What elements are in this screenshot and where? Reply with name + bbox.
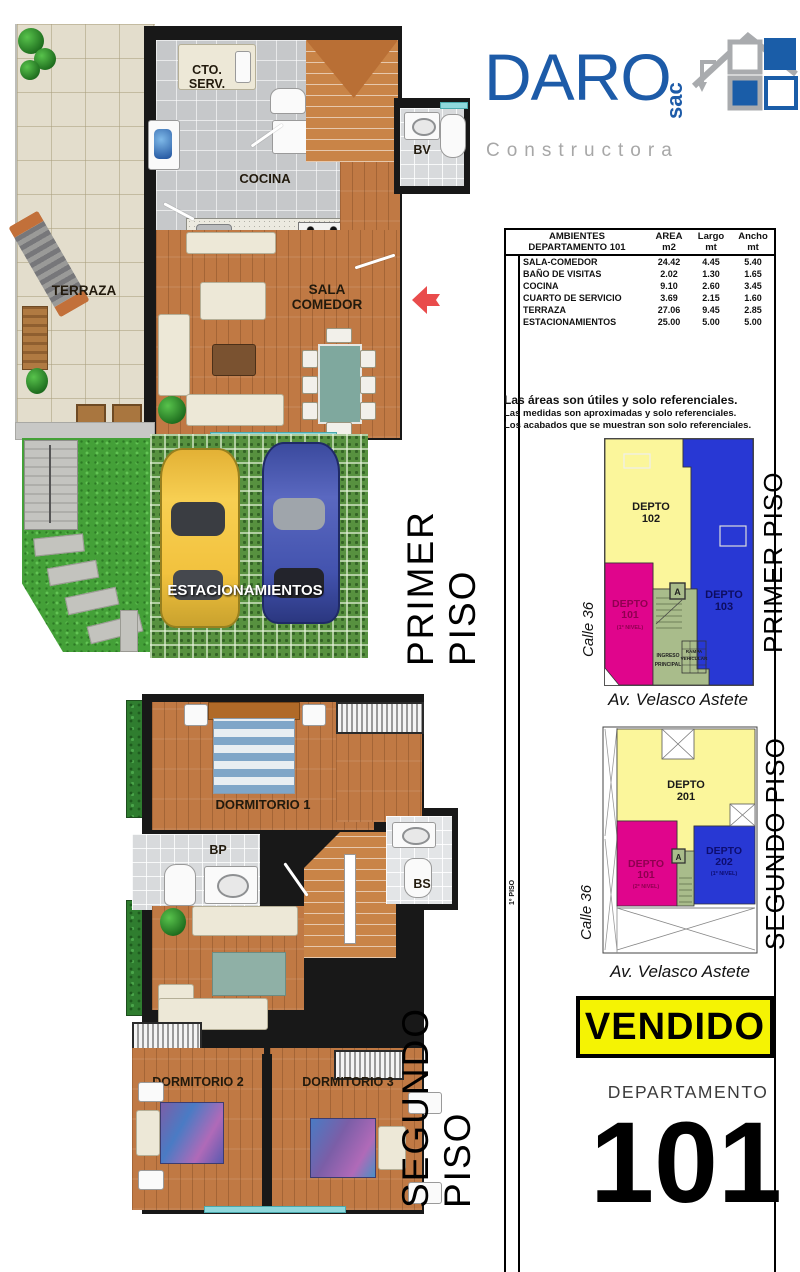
ingreso-line1: INGRESO: [656, 653, 679, 659]
header-largo-line2: mt: [690, 242, 732, 253]
sala-line2: COMEDOR: [272, 298, 382, 313]
row-area: 9.10: [648, 281, 690, 291]
site-plot-2: A DEPTO 201 DEPTO 101 (2º NIVEL) DEPTO 2…: [602, 726, 758, 958]
row-name: BAÑO DE VISITAS: [520, 269, 648, 279]
nightstand-icon: [302, 704, 326, 726]
sink-oval: [217, 874, 249, 898]
chair-icon: [302, 350, 318, 368]
depto102-line2: 102: [642, 513, 660, 525]
chair-icon: [360, 350, 376, 368]
bed-duvet: [213, 718, 295, 794]
row-name: COCINA: [520, 281, 648, 291]
chair-icon: [302, 376, 318, 394]
car-yellow-icon: [160, 448, 240, 628]
brochure-page: TERRAZA CTO. SERV. COCINA: [0, 0, 800, 1272]
bv-room: BV: [394, 98, 470, 194]
stairs-icon: [306, 40, 398, 162]
bed-icon: [132, 1100, 224, 1164]
primer-piso-plan-title: PRIMER PISO: [414, 424, 470, 666]
row-largo: 2.15: [690, 293, 732, 303]
logo-suffix-text: sac: [662, 68, 688, 134]
toilet-icon: [164, 864, 196, 906]
row-area: 3.69: [648, 293, 690, 303]
depto102-line1: DEPTO: [632, 501, 670, 513]
laundry-sink-icon: [148, 120, 180, 170]
window: [440, 102, 468, 109]
dining-table-icon: [318, 344, 362, 424]
depto101-line3: (1º NIVEL): [617, 625, 644, 631]
header-title: AMBIENTES DEPARTAMENTO 101: [506, 230, 648, 254]
header-largo-line1: Largo: [690, 231, 732, 242]
garden-lawn: [22, 438, 150, 652]
note-line2: Las medidas son aproximadas y solo refer…: [504, 408, 796, 420]
header-ancho-line1: Ancho: [732, 231, 774, 242]
cocina-label: COCINA: [220, 172, 310, 186]
sofa-icon: [200, 282, 266, 320]
nightstand-icon: [138, 1170, 164, 1190]
bs-label: BS: [402, 878, 442, 892]
header-area-line1: AREA: [648, 231, 690, 242]
note-line1: Las áreas son útiles y solo referenciale…: [504, 394, 796, 408]
depto101-line2: 101: [621, 609, 639, 621]
sideboard-icon: [186, 232, 276, 254]
depto101-line3: (2º NIVEL): [633, 884, 660, 890]
depto202-line2: 202: [715, 856, 733, 868]
stair-landing: [306, 40, 398, 98]
bed-icon: [308, 1116, 408, 1178]
ingreso-line2: PRINCIPAL: [655, 662, 682, 668]
stairs-icon: [304, 832, 396, 958]
row-name: TERRAZA: [520, 305, 648, 315]
areas-table-header: AMBIENTES DEPARTAMENTO 101 AREA m2 Largo…: [506, 230, 774, 256]
sala-comedor-label: SALA COMEDOR: [272, 283, 382, 313]
sofa-icon: [186, 394, 284, 426]
header-ancho-line2: mt: [732, 242, 774, 253]
site-diagram-primer-piso: Calle 36 A DEPTO 102 DEPTO 103 DEPTO 101…: [578, 432, 794, 718]
cto-line2: SERV.: [172, 78, 242, 92]
plant-icon: [160, 908, 186, 936]
header-largo: Largo mt: [690, 230, 732, 254]
diagram1-side-title: PRIMER PISO: [758, 436, 789, 688]
note-line3: Los acabados que se muestran son solo re…: [504, 420, 796, 432]
disclaimer-notes: Las áreas son útiles y solo referenciale…: [504, 394, 796, 432]
row-largo: 2.60: [690, 281, 732, 291]
vendido-banner: VENDIDO: [576, 996, 774, 1058]
row-largo: 1.30: [690, 269, 732, 279]
car-windshield: [273, 498, 325, 530]
sink-oval: [402, 827, 430, 845]
entrance-arrow-icon: [412, 282, 440, 318]
segundo-piso-plan-title: SEGUNDO PISO: [408, 944, 466, 1208]
sidewalk: [15, 422, 155, 440]
desk-icon: [192, 906, 298, 936]
stair-railing: [344, 854, 356, 944]
bathroom-sink-icon: [404, 112, 440, 140]
toilet-icon: [270, 88, 306, 114]
row-area: 2.02: [648, 269, 690, 279]
car-windshield: [171, 502, 225, 536]
site-diagram-segundo-piso: Calle 36 A DEPTO 201 DEPTO 101 (2º NIVEL…: [578, 724, 794, 988]
header-area: AREA m2: [648, 230, 690, 254]
chair-icon: [302, 402, 318, 420]
stepping-stone: [65, 587, 120, 615]
plant-icon: [158, 396, 186, 424]
stair-a-label: A: [674, 587, 681, 597]
header-title-line2: DEPARTAMENTO 101: [506, 242, 648, 253]
row-largo: 4.45: [690, 257, 732, 267]
calle-36-label: Calle 36: [580, 582, 597, 677]
sink-basin: [154, 129, 172, 159]
plant-icon: [26, 368, 48, 394]
armchair-icon: [158, 314, 190, 396]
stepping-stone: [33, 533, 85, 556]
row-largo: 5.00: [690, 317, 732, 327]
site-plot-1: A DEPTO 102 DEPTO 103 DEPTO 101 (1º NIVE…: [604, 438, 754, 686]
walkway-ramp: [24, 440, 78, 530]
departamento-number: 101: [578, 1106, 794, 1221]
depto202-line3: (1º NIVEL): [711, 871, 738, 877]
stair-corner-wall: [304, 832, 340, 868]
nightstand-icon: [184, 704, 208, 726]
row-name: ESTACIONAMIENTOS: [520, 317, 648, 327]
row-area: 25.00: [648, 317, 690, 327]
cto-line1: CTO.: [172, 64, 242, 78]
table-row: COCINA9.102.603.45: [520, 280, 774, 292]
chair-icon: [326, 328, 352, 343]
table-row: ESTACIONAMIENTOS25.005.005.00: [520, 316, 774, 328]
bathroom-sink-icon: [392, 822, 436, 848]
calle-36-label: Calle 36: [578, 872, 595, 952]
bv-label: BV: [402, 144, 442, 158]
sala-line1: SALA: [272, 283, 382, 298]
bathroom-sink-icon: [204, 866, 258, 904]
row-ancho: 3.45: [732, 281, 774, 291]
bed-duvet: [310, 1118, 376, 1178]
row-name: CUARTO DE SERVICIO: [520, 293, 648, 303]
depto201-line2: 201: [677, 791, 695, 803]
rampa-line1: RAMPA: [686, 649, 703, 654]
table-row: CUARTO DE SERVICIO3.692.151.60: [520, 292, 774, 304]
av-velasco-astete-label: Av. Velasco Astete: [578, 690, 778, 710]
row-ancho: 1.60: [732, 293, 774, 303]
chair-icon: [360, 376, 376, 394]
toilet-icon: [440, 114, 466, 158]
header-title-line1: AMBIENTES: [506, 231, 648, 242]
depto103-line1: DEPTO: [705, 589, 743, 601]
diagram2-side-title: SEGUNDO PISO: [760, 724, 791, 964]
bed-pillow: [136, 1110, 160, 1156]
row-area: 24.42: [648, 257, 690, 267]
bed-icon: [208, 702, 298, 800]
bp-label: BP: [200, 844, 236, 858]
header-ancho: Ancho mt: [732, 230, 774, 254]
table-row: BAÑO DE VISITAS2.021.301.65: [520, 268, 774, 280]
rampa-line2: VEHICULAR: [681, 656, 708, 661]
depto201-line1: DEPTO: [667, 779, 705, 791]
logo-tagline: Constructora: [486, 140, 798, 162]
logo-house-icon: [686, 26, 800, 140]
sink-oval: [412, 118, 436, 136]
row-ancho: 5.40: [732, 257, 774, 267]
window: [204, 1206, 346, 1213]
coffee-table-icon: [212, 344, 256, 376]
estacionamientos-label: ESTACIONAMIENTOS: [150, 582, 340, 599]
closet-icon: [336, 702, 424, 734]
row-ancho: 2.85: [732, 305, 774, 315]
row-ancho: 1.65: [732, 269, 774, 279]
logo-brand-text: DARO: [484, 44, 671, 110]
header-area-line2: m2: [648, 242, 690, 253]
depto103-line2: 103: [715, 601, 733, 613]
row-largo: 9.45: [690, 305, 732, 315]
depto101-line2: 101: [637, 869, 655, 881]
row-area: 27.06: [648, 305, 690, 315]
chair-icon: [360, 402, 376, 420]
table-row: TERRAZA27.069.452.85: [520, 304, 774, 316]
av-velasco-astete-label: Av. Velasco Astete: [578, 962, 782, 982]
plant-icon: [20, 60, 40, 80]
bench-icon: [22, 306, 48, 370]
nightstand-icon: [138, 1082, 164, 1102]
cuarto-servicio-label: CTO. SERV.: [172, 64, 242, 92]
walkway-arrow: [49, 445, 51, 523]
table-row: SALA-COMEDOR24.424.455.40: [520, 256, 774, 268]
logo: DARO sac Constructora: [478, 26, 798, 168]
bed-duvet: [160, 1102, 224, 1164]
row-ancho: 5.00: [732, 317, 774, 327]
stepping-stone: [120, 610, 138, 652]
stepping-stone: [47, 560, 99, 586]
row-name: SALA-COMEDOR: [520, 257, 648, 267]
terraza-label: TERRAZA: [28, 284, 140, 299]
dormitorio1-label: DORMITORIO 1: [178, 798, 348, 812]
divider-wall: [262, 1054, 272, 1210]
stair-a-label: A: [676, 853, 682, 862]
